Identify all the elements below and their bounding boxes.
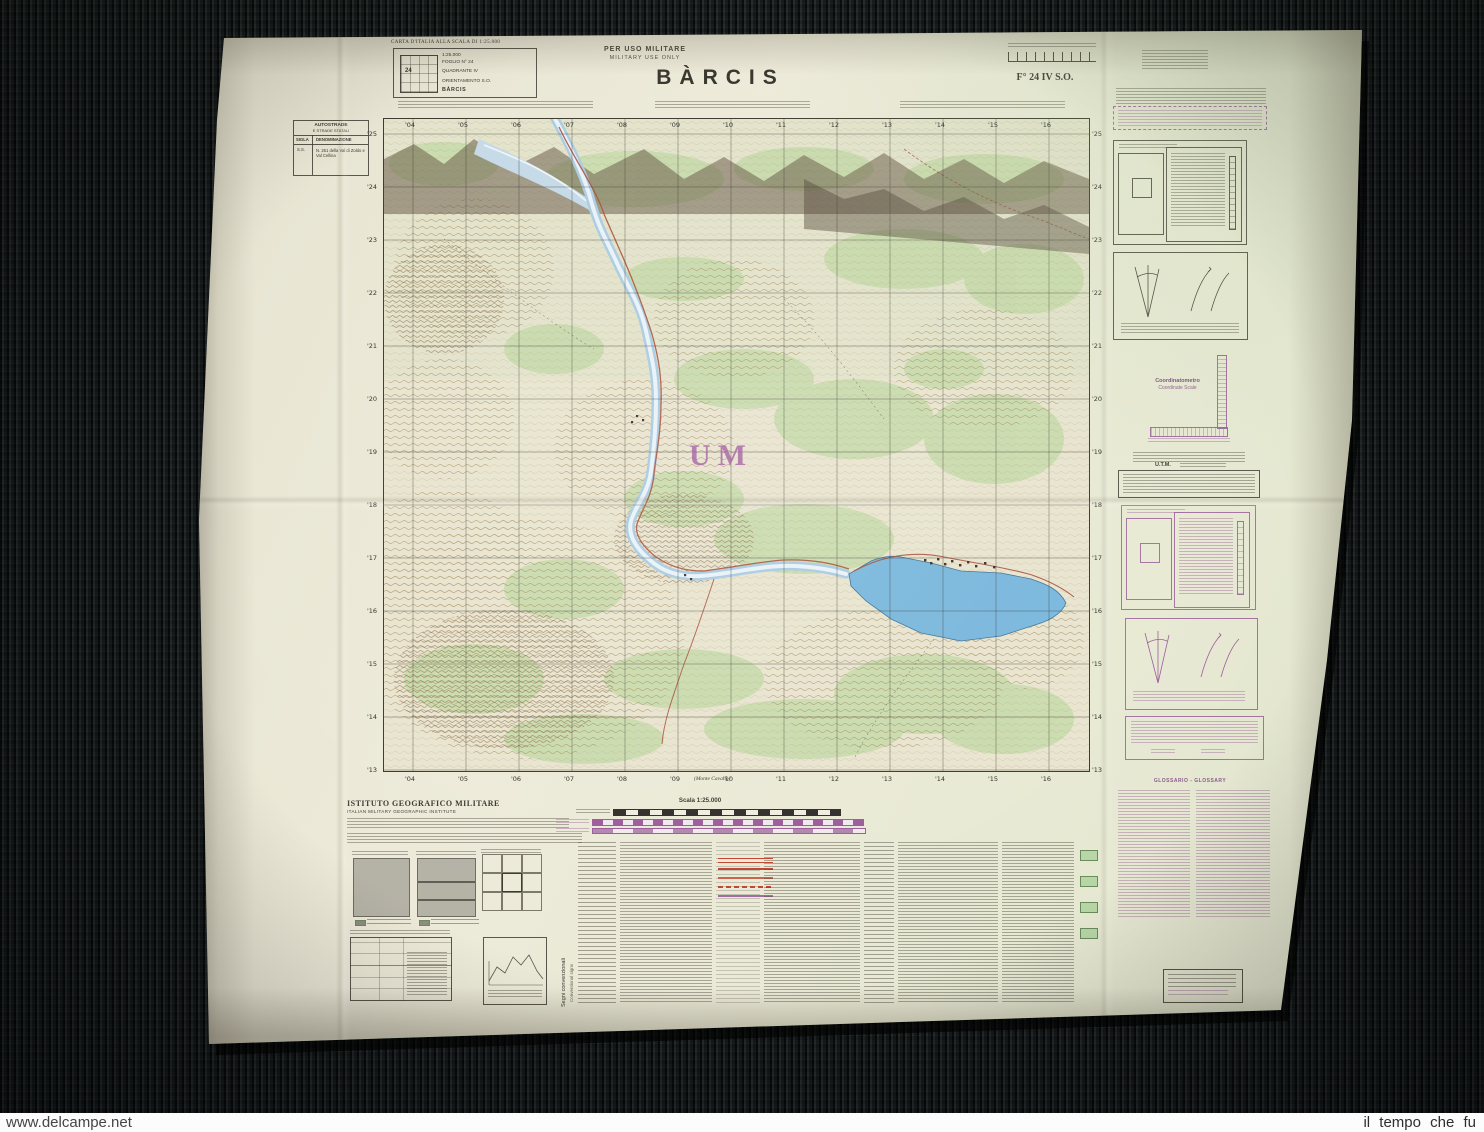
utm-warning-box [1118, 470, 1260, 498]
grid-label: '19 [1092, 448, 1102, 456]
grid-label: '23 [367, 236, 377, 244]
magnetic-note-value2 [1201, 749, 1225, 753]
grid-label: '15 [988, 121, 998, 129]
magnetic-note-value1 [1151, 749, 1175, 753]
grid-label: '06 [511, 121, 521, 129]
profile-caption-greek [488, 990, 542, 999]
sheet-id-line3 [1168, 990, 1228, 995]
sample-square [1132, 178, 1152, 198]
grid-label: '14 [935, 121, 945, 129]
coordinatometro-label-it: Coordinatometro [1140, 378, 1215, 384]
utm-label: U.T.M. [1155, 462, 1171, 468]
trig-table-caption-greek [350, 930, 450, 935]
arrow-diagram-purple-icon [1191, 625, 1249, 687]
legend-veg-chip1 [1080, 850, 1098, 861]
grid-label: '25 [1092, 130, 1102, 138]
scale-bar-vertical [1229, 156, 1236, 230]
military-use-line-it: PER USO MILITARE [570, 46, 720, 54]
coordinatometro-label-en: Coordinate Scale [1140, 386, 1215, 392]
grid-label: '16 [367, 607, 377, 615]
grid-label: '16 [1092, 607, 1102, 615]
quadrant-diagram-number: 24 [405, 68, 412, 75]
photo-scene: CARTA D'ITALIA ALLA SCALA DI 1:25.000 24… [0, 0, 1484, 1132]
watermark-left: www.delcampe.net [6, 1114, 132, 1131]
diagram2-line1 [418, 881, 475, 883]
coordinate-scale-horizontal-ruler [1150, 427, 1228, 437]
grid-label: '14 [367, 713, 377, 721]
sample-square-purple [1140, 543, 1160, 563]
scale-bar-purple2 [592, 828, 866, 834]
legend-colC-text-greek [898, 842, 998, 1004]
sheet-id-box [1163, 969, 1243, 1003]
declination-fan-icon [1121, 259, 1176, 321]
roads-row-name: N. 251 della Val di Zoldo e Val Cellina [316, 148, 366, 159]
grid-label: '07 [564, 775, 574, 783]
legend-colB-symbols-greek [716, 842, 760, 1004]
grid-label: '11 [776, 121, 786, 129]
grid-label: '08 [617, 121, 627, 129]
grid-label: '20 [1092, 395, 1102, 403]
watermark-strip: www.delcampe.net il tempo che fu [0, 1113, 1484, 1132]
grid-label: '22 [1092, 289, 1102, 297]
utm-note-greek [1133, 452, 1245, 462]
grid-label: '13 [367, 766, 377, 774]
series-info-greek [1142, 50, 1208, 70]
grid-label: '11 [776, 775, 786, 783]
diagram2-caption-greek [416, 851, 476, 856]
instructions-box [1166, 147, 1242, 242]
grid-label: '05 [458, 121, 468, 129]
grid-label: '16 [1041, 775, 1051, 783]
roads-table-subtitle: E STRADE STATALI [294, 129, 368, 134]
legend-colA-text-greek [620, 842, 712, 1004]
sheet-reference-box: 24 1:25.000 FOGLIO N° 24 QUADRANTE IV OR… [393, 48, 537, 98]
grid-label: '13 [882, 775, 892, 783]
sample-square-box-purple [1126, 518, 1172, 600]
diagram2-key-chip [419, 920, 430, 926]
institute-notes1-greek [347, 818, 569, 830]
roads-table: AUTOSTRADE E STRADE STATALI SIGLA DENOMI… [293, 120, 369, 176]
legend-veg-chip3 [1080, 902, 1098, 913]
grid-label: '19 [367, 448, 377, 456]
declination-panel-black [1113, 252, 1248, 340]
grid-label: '21 [367, 342, 377, 350]
ref-line-tavoletta: BÀRCIS [442, 87, 466, 93]
utm-warning-greek [1123, 474, 1255, 494]
grid-label: '14 [935, 775, 945, 783]
adjoining-sheets-diagram [482, 854, 542, 911]
grid-note-box [1113, 106, 1267, 130]
declination-caption-greek [1121, 323, 1239, 333]
map-grid-labels: (Monte Cavallo) '04'04'05'05'06'06'07'07… [384, 119, 1089, 771]
grid-label: '18 [1092, 501, 1102, 509]
credits-greek-left [398, 101, 593, 110]
reliability-diagram2 [417, 858, 476, 917]
grid-reference-panel-purple [1121, 505, 1256, 610]
grid-label: '14 [1092, 713, 1102, 721]
roads-col-denominazione: DENOMINAZIONE [316, 138, 352, 143]
reliability-diagram1 [353, 858, 410, 917]
grid-label: '18 [367, 501, 377, 509]
grid-label: '07 [564, 121, 574, 129]
grid-label: '25 [367, 130, 377, 138]
grid-label: '10 [723, 775, 733, 783]
terrain-profile-icon [485, 941, 545, 989]
grid-label: '04 [405, 121, 415, 129]
declination-panel-purple [1125, 618, 1258, 710]
scalebar2-left-greek [556, 819, 589, 824]
ref-line-foglio: FOGLIO N° 24 [442, 60, 474, 66]
grid-label: '09 [670, 775, 680, 783]
grid-label: '12 [829, 775, 839, 783]
diagram1-key-chip [355, 920, 366, 926]
watermark-right: il tempo che fu [1363, 1114, 1476, 1131]
legend-colA-symbols-greek [578, 842, 616, 1004]
glossary-col1-greek [1118, 790, 1190, 918]
grid-label: '22 [367, 289, 377, 297]
magnetic-note-greek [1131, 721, 1258, 745]
grid-label: '17 [367, 554, 377, 562]
carta-italia-line: CARTA D'ITALIA ALLA SCALA DI 1:25.000 [391, 40, 500, 46]
signs-label-en: Conventional signs [569, 852, 574, 1002]
glossary-title: GLOSSARIO - GLOSSARY [1150, 779, 1230, 785]
sheet-code: F° 24 IV S.O. [995, 72, 1095, 84]
grid-label: '08 [617, 775, 627, 783]
ref-line-scale: 1:25.000 [442, 53, 461, 59]
coordinate-scale-numbers-greek [1148, 438, 1230, 443]
grid-label: '04 [405, 775, 415, 783]
ref-line-quadrante: QUADRANTE IV [442, 69, 478, 75]
diagram2-key-greek [431, 919, 479, 925]
grid-label: '12 [829, 121, 839, 129]
ref-line-orientamento: ORIENTAMENTO S.O. [442, 79, 491, 85]
instructions-greek-purple [1179, 518, 1233, 594]
scalebar3-left-greek [556, 828, 589, 832]
military-use-line-en: MILITARY USE ONLY [570, 55, 720, 61]
roads-col-sigla: SIGLA [296, 138, 309, 143]
roads-table-colline [312, 135, 313, 175]
signs-vertical-labels: Segni convenzionali Conventional signs [561, 842, 577, 1007]
signs-label-it: Segni convenzionali [561, 842, 567, 1007]
trig-values-greek [407, 952, 447, 996]
roads-table-divider2 [294, 144, 368, 145]
sheet-id-line2 [1168, 982, 1236, 987]
grid-label: '06 [511, 775, 521, 783]
scale-label: Scala 1:25.000 [655, 797, 745, 804]
credits-greek-right [900, 101, 1065, 110]
quadrant-diagram: 24 [400, 55, 438, 93]
grid-label: '21 [1092, 342, 1102, 350]
institute-subtitle: ITALIAN MILITARY GEOGRAPHIC INSTITUTE [347, 809, 456, 814]
projection-note-greek [1116, 88, 1266, 104]
declination-fan-purple-icon [1131, 625, 1186, 687]
grid-label: '09 [670, 121, 680, 129]
legend-colC-symbols-greek [864, 842, 894, 1004]
margin-tick-ruler [1008, 52, 1096, 62]
profile-diagram-box [483, 937, 547, 1005]
roads-table-divider [294, 135, 368, 136]
grid-note-greek [1118, 110, 1262, 126]
scale-bar-vertical-purple [1237, 521, 1244, 595]
institute-title: ISTITUTO GEOGRAFICO MILITARE [347, 799, 500, 808]
grid-label: '24 [1092, 183, 1102, 191]
diagram1-key-greek [367, 919, 411, 925]
glossary-col2-greek [1196, 790, 1270, 918]
grid-label: '23 [1092, 236, 1102, 244]
grid-label: '13 [1092, 766, 1102, 774]
map-sheet: CARTA D'ITALIA ALLA SCALA DI 1:25.000 24… [0, 0, 1484, 1132]
legend-colD-text-greek [1002, 842, 1074, 1004]
grid-label: '10 [723, 121, 733, 129]
grid-label: '24 [367, 183, 377, 191]
sample-square-box [1118, 153, 1164, 235]
declination-caption-purple-greek [1133, 691, 1245, 703]
scalebar1-left-greek [576, 809, 610, 814]
arrow-diagram-icon [1181, 259, 1239, 321]
margin-ruler-numbers [1008, 43, 1096, 49]
grid-label: '05 [458, 775, 468, 783]
grid-label: '17 [1092, 554, 1102, 562]
coordinate-scale-vertical-ruler [1217, 355, 1227, 429]
scale-bar-purple1 [592, 819, 864, 826]
magnetic-note-box [1125, 716, 1264, 760]
grid-label: '15 [367, 660, 377, 668]
roads-row-sigla: S.S. [297, 148, 305, 153]
trig-points-table [350, 937, 452, 1001]
legend-colB-text-greek [764, 842, 860, 1004]
diagram1-caption-greek [352, 851, 408, 856]
grid-label: '15 [1092, 660, 1102, 668]
grid-label: '16 [1041, 121, 1051, 129]
grid-label: '13 [882, 121, 892, 129]
legend-veg-chip4 [1080, 928, 1098, 939]
instructions-box-purple [1174, 512, 1250, 608]
diagram2-line2 [418, 899, 475, 901]
credits-greek-center [655, 101, 810, 110]
sheet-id-line1 [1168, 974, 1236, 979]
map-title: BÀRCIS [638, 66, 803, 90]
institute-notes2-greek [347, 833, 582, 845]
grid-label: '20 [367, 395, 377, 403]
utm-note2-greek [1180, 463, 1226, 468]
scale-bar-black [613, 809, 841, 816]
map-body: UM (Monte Cavallo) '04'04'05'05'06'06'07… [383, 118, 1090, 772]
grid-reference-panel-black [1113, 140, 1247, 245]
grid-label: '15 [988, 775, 998, 783]
legend-veg-chip2 [1080, 876, 1098, 887]
instructions-greek [1171, 153, 1225, 227]
